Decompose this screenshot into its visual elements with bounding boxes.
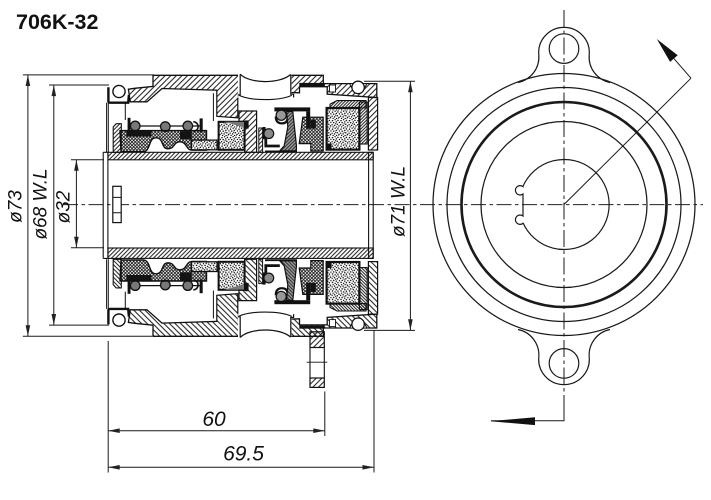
svg-text:ø73: ø73 <box>6 190 27 223</box>
svg-text:69.5: 69.5 <box>223 443 264 466</box>
svg-text:ø68 W.L: ø68 W.L <box>31 168 52 239</box>
svg-text:ø71 W.L: ø71 W.L <box>389 166 410 237</box>
svg-text:ø32: ø32 <box>54 190 75 223</box>
svg-text:706K-32: 706K-32 <box>16 10 99 34</box>
svg-text:60: 60 <box>202 408 226 431</box>
